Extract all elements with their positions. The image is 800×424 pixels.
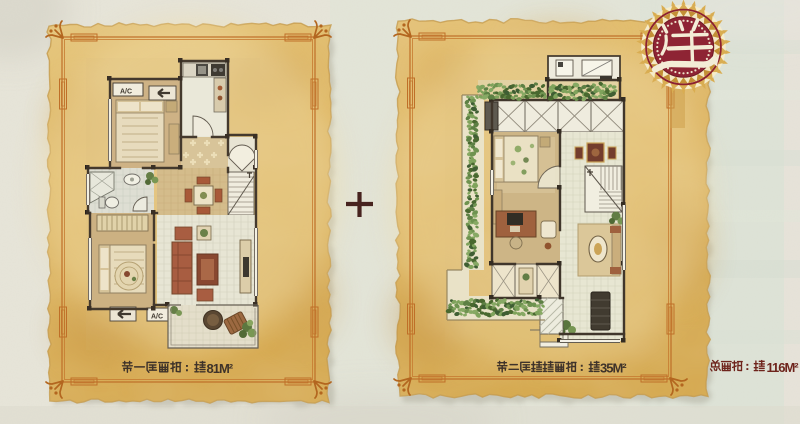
svg-text:116M²: 116M² bbox=[767, 360, 800, 375]
svg-text:81M²: 81M² bbox=[207, 361, 234, 376]
svg-text:35M²: 35M² bbox=[600, 361, 627, 376]
